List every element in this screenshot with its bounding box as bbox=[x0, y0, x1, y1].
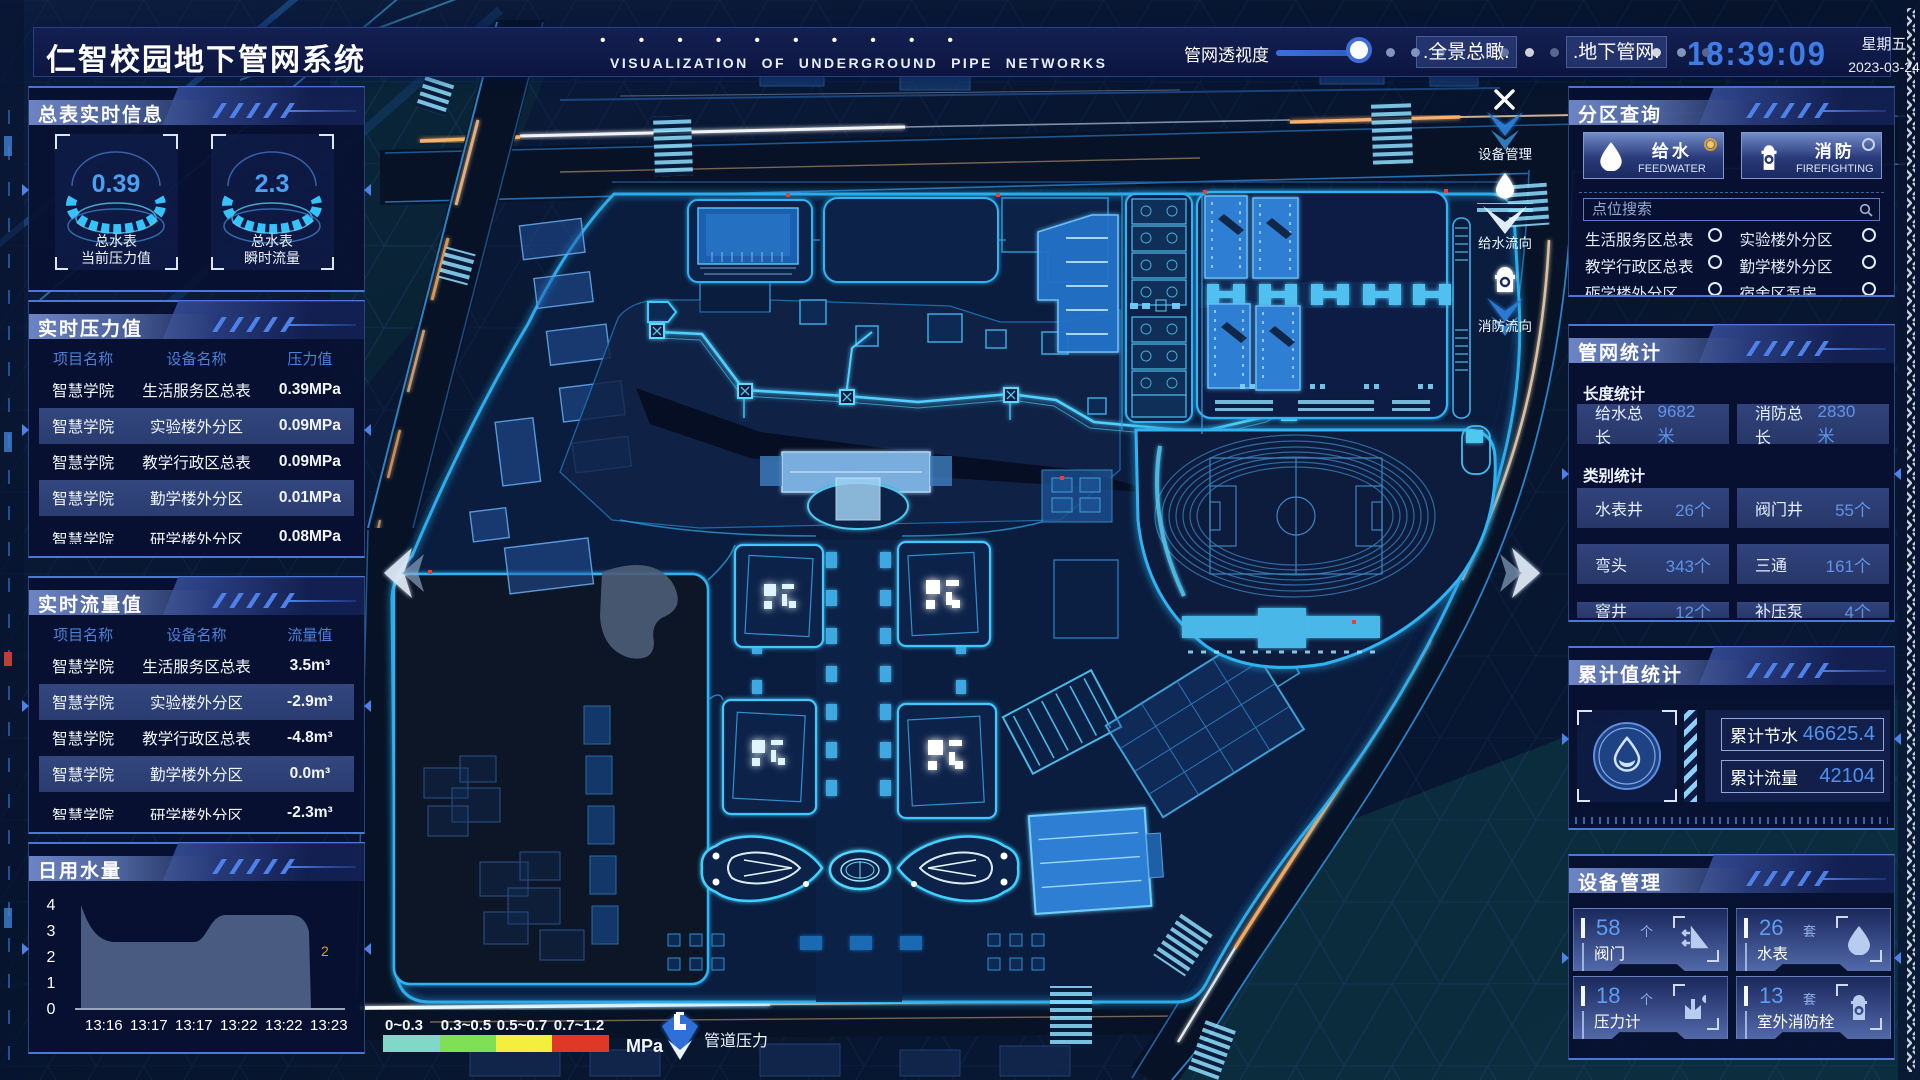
svg-text:0.5~0.7: 0.5~0.7 bbox=[497, 1017, 547, 1034]
svg-text:总水表: 总水表 bbox=[251, 233, 293, 249]
svg-text:0: 0 bbox=[47, 1001, 56, 1018]
svg-text:当前压力值: 当前压力值 bbox=[81, 250, 151, 266]
svg-text:0~0.3: 0~0.3 bbox=[385, 1017, 423, 1034]
svg-text:2.3: 2.3 bbox=[255, 170, 290, 198]
svg-text:0.39: 0.39 bbox=[92, 170, 141, 198]
svg-text:管道压力: 管道压力 bbox=[704, 1032, 768, 1050]
svg-text:总水表: 总水表 bbox=[95, 233, 137, 249]
svg-text:13:23: 13:23 bbox=[310, 1017, 348, 1034]
svg-text:13:17: 13:17 bbox=[175, 1017, 213, 1034]
svg-text:13:22: 13:22 bbox=[265, 1017, 303, 1034]
svg-text:1: 1 bbox=[47, 975, 56, 992]
svg-text:13:16: 13:16 bbox=[85, 1017, 123, 1034]
svg-text:2: 2 bbox=[321, 943, 329, 959]
svg-text:消防流向: 消防流向 bbox=[1478, 319, 1532, 334]
svg-text:0.3~0.5: 0.3~0.5 bbox=[441, 1017, 491, 1034]
svg-text:13:22: 13:22 bbox=[220, 1017, 258, 1034]
svg-text:设备管理: 设备管理 bbox=[1478, 146, 1532, 162]
svg-text:给水流向: 给水流向 bbox=[1478, 236, 1532, 251]
svg-text:2: 2 bbox=[47, 949, 56, 966]
svg-text:4: 4 bbox=[47, 897, 56, 914]
svg-text:13:17: 13:17 bbox=[130, 1017, 168, 1034]
svg-text:3: 3 bbox=[47, 923, 56, 940]
svg-text:瞬时流量: 瞬时流量 bbox=[244, 250, 300, 266]
svg-text:MPa: MPa bbox=[626, 1036, 664, 1056]
svg-text:0.7~1.2: 0.7~1.2 bbox=[554, 1017, 604, 1034]
